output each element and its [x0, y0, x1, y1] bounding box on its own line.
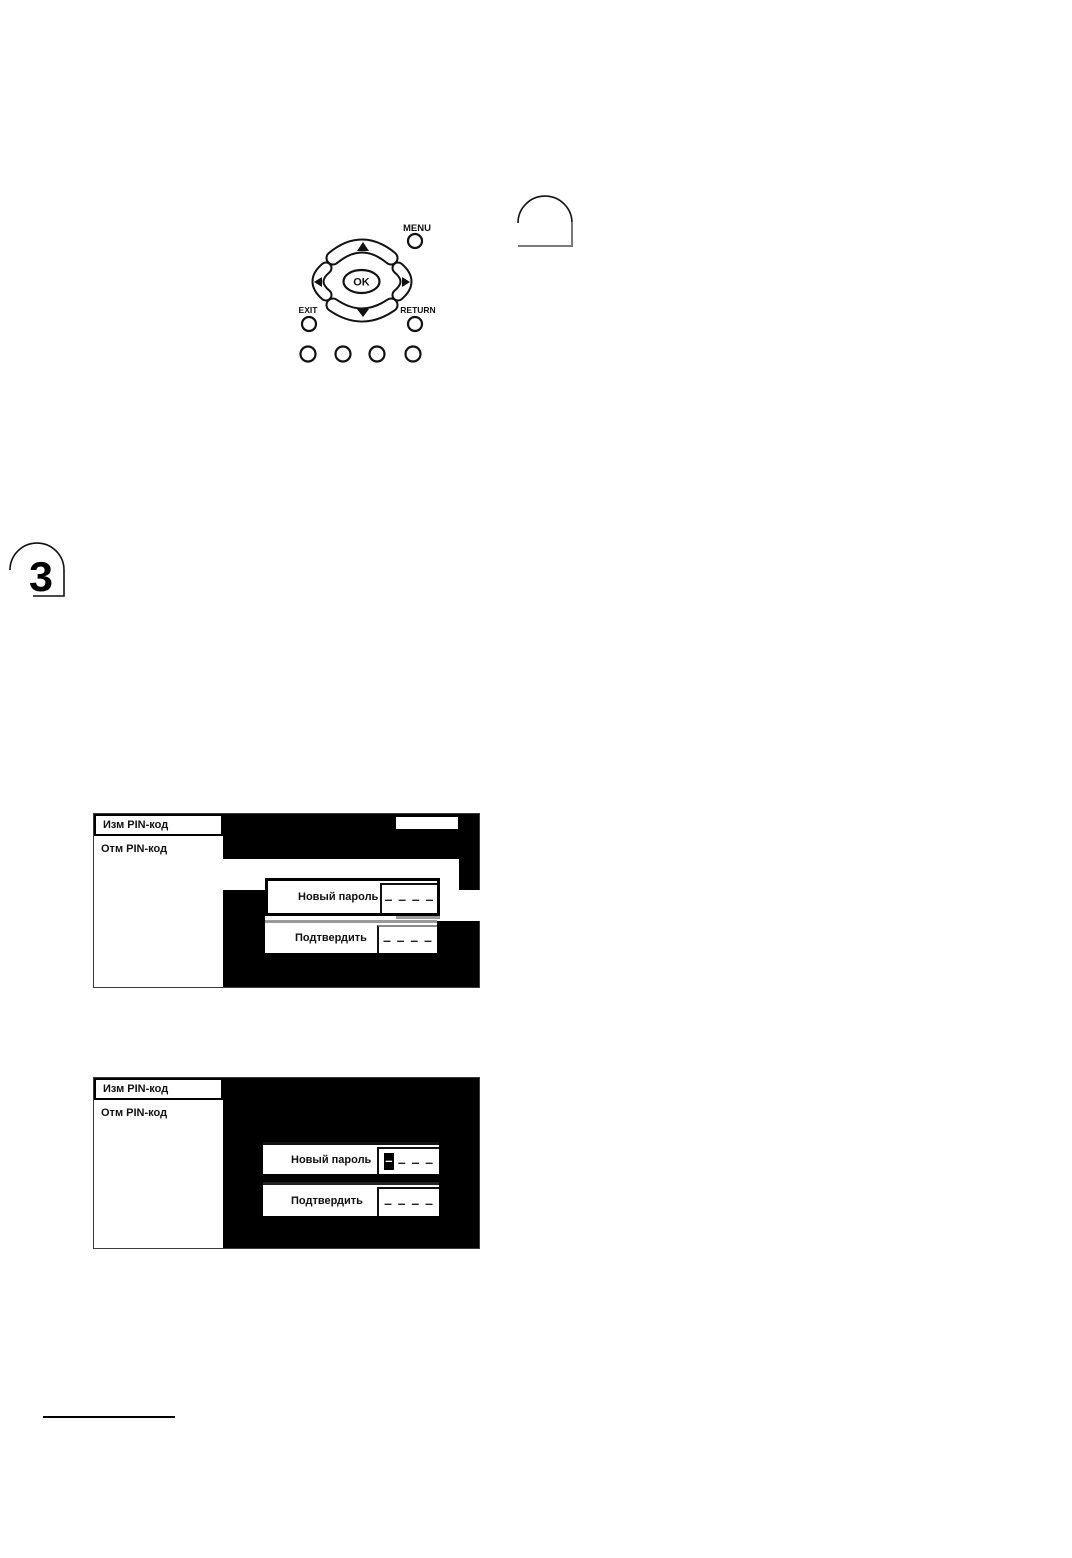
left-button — [314, 268, 326, 295]
right-button — [398, 268, 410, 295]
input-cursor: – — [384, 1153, 394, 1170]
confirm-password-input: – – – – — [377, 925, 437, 953]
tv-menu-screenshot-2: Изм PIN-код Отм PIN-код Новый пароль – –… — [93, 1077, 480, 1249]
menu-item-change-pin: Изм PIN-код — [94, 1078, 223, 1100]
menu-button — [408, 234, 422, 248]
confirm-password-row: Подтвердить – – – – — [265, 920, 437, 953]
section-number: 3 — [29, 553, 53, 598]
menu-button-label: MENU — [403, 223, 431, 234]
new-password-row: Новый пароль – – – – — [265, 878, 440, 916]
confirm-password-label: Подтвердить — [295, 923, 367, 953]
new-password-row: Новый пароль – – – – — [263, 1142, 439, 1174]
ok-button: OK — [344, 270, 380, 293]
round-button-4 — [406, 347, 421, 362]
password-placeholder-dashes: – – – – — [385, 891, 435, 907]
return-button-label: RETURN — [400, 305, 435, 315]
round-button-2 — [336, 347, 351, 362]
new-password-label: Новый пароль — [291, 1145, 371, 1174]
color-buttons-row — [301, 347, 421, 362]
password-placeholder-dashes: – – – – — [383, 932, 433, 948]
section-number-tab: 3 — [8, 540, 66, 598]
menu-item-cancel-pin: Отм PIN-код — [101, 843, 167, 855]
confirm-password-row: Подтвердить – – – – — [263, 1182, 439, 1216]
ok-button-label: OK — [353, 277, 370, 289]
footnote-rule — [43, 1416, 175, 1418]
password-placeholder-dashes: – – – — [398, 1154, 434, 1170]
remote-control-diagram: MENU OK EXIT — [285, 213, 445, 368]
menu-item-change-pin: Изм PIN-код — [94, 814, 223, 836]
new-password-input: – – – – — [380, 883, 437, 913]
round-button-3 — [370, 347, 385, 362]
new-password-input: – – – – — [377, 1147, 439, 1174]
new-password-label: Новый пароль — [298, 881, 378, 913]
arch-tab-decoration — [516, 195, 574, 249]
menu-item-cancel-pin: Отм PIN-код — [101, 1107, 167, 1119]
down-button — [333, 305, 391, 317]
return-button — [408, 317, 422, 331]
top-right-highlight-rect — [396, 817, 458, 829]
exit-button — [302, 317, 316, 331]
up-button — [333, 242, 391, 258]
tv-menu-screenshot-1: Изм PIN-код Отм PIN-код Новый пароль – –… — [93, 813, 480, 988]
exit-button-label: EXIT — [299, 305, 319, 315]
confirm-password-label: Подтвердить — [291, 1185, 363, 1216]
divider-line — [396, 916, 440, 919]
manual-page: MENU OK EXIT — [0, 0, 1072, 1558]
password-placeholder-dashes: – – – – — [384, 1195, 434, 1211]
confirm-password-input: – – – – — [377, 1187, 439, 1216]
round-button-1 — [301, 347, 316, 362]
